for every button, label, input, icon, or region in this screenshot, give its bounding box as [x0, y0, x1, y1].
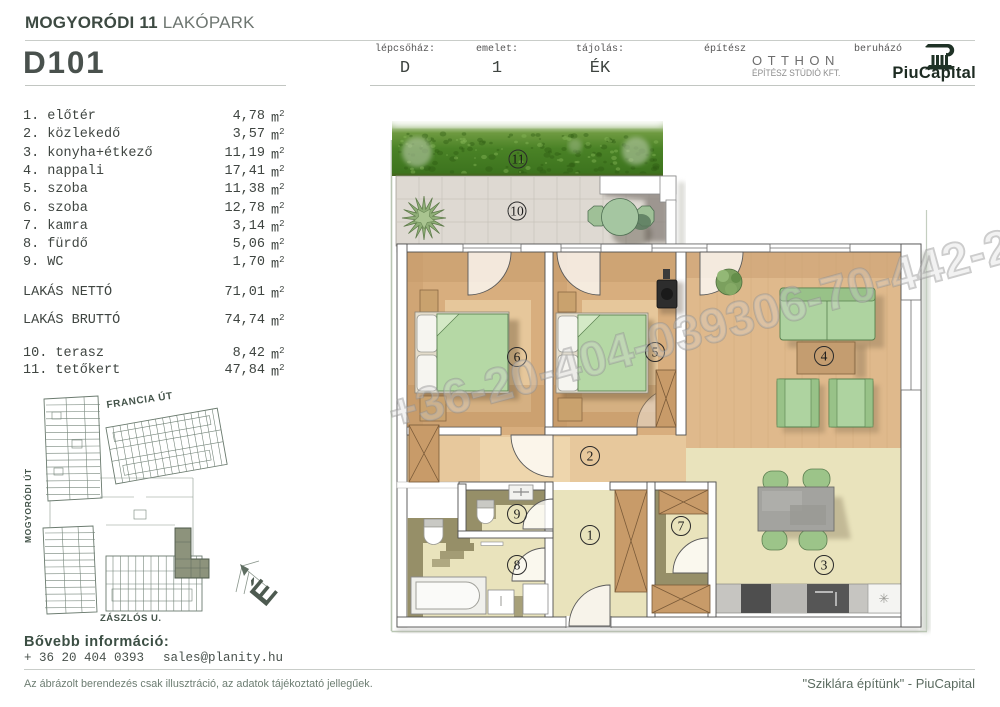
- svg-text:7: 7: [678, 519, 685, 534]
- svg-text:8: 8: [514, 558, 521, 573]
- svg-text:MOGYORÓDI ÚT: MOGYORÓDI ÚT: [22, 468, 33, 543]
- svg-text:11: 11: [512, 152, 525, 167]
- svg-text:2: 2: [587, 449, 594, 464]
- svg-text:9: 9: [514, 507, 521, 522]
- svg-text:É: É: [243, 573, 284, 612]
- svg-text:ZÁSZLÓS U.: ZÁSZLÓS U.: [100, 612, 161, 624]
- svg-text:3: 3: [821, 558, 828, 573]
- svg-text:4: 4: [821, 349, 828, 364]
- svg-text:10: 10: [510, 204, 524, 219]
- svg-text:✳: ✳: [879, 591, 890, 606]
- svg-text:FRANCIA ÚT: FRANCIA ÚT: [106, 389, 174, 411]
- svg-text:1: 1: [587, 528, 594, 543]
